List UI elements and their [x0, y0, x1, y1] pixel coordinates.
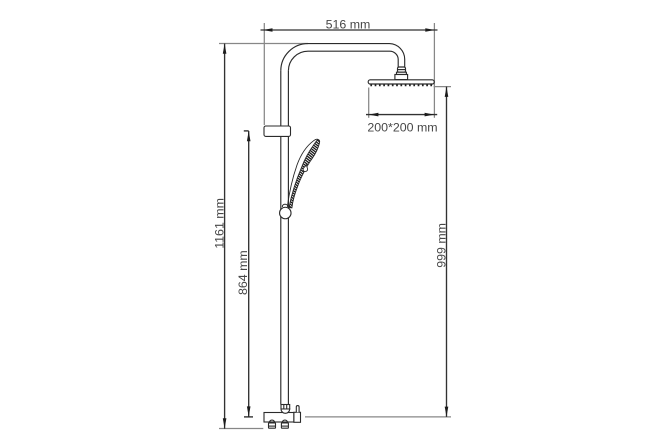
svg-text:1161 mm: 1161 mm — [212, 198, 226, 249]
svg-text:999 mm: 999 mm — [435, 223, 449, 268]
svg-text:516 mm: 516 mm — [326, 18, 371, 32]
svg-text:200*200 mm: 200*200 mm — [367, 120, 437, 134]
svg-text:864 mm: 864 mm — [236, 250, 250, 295]
